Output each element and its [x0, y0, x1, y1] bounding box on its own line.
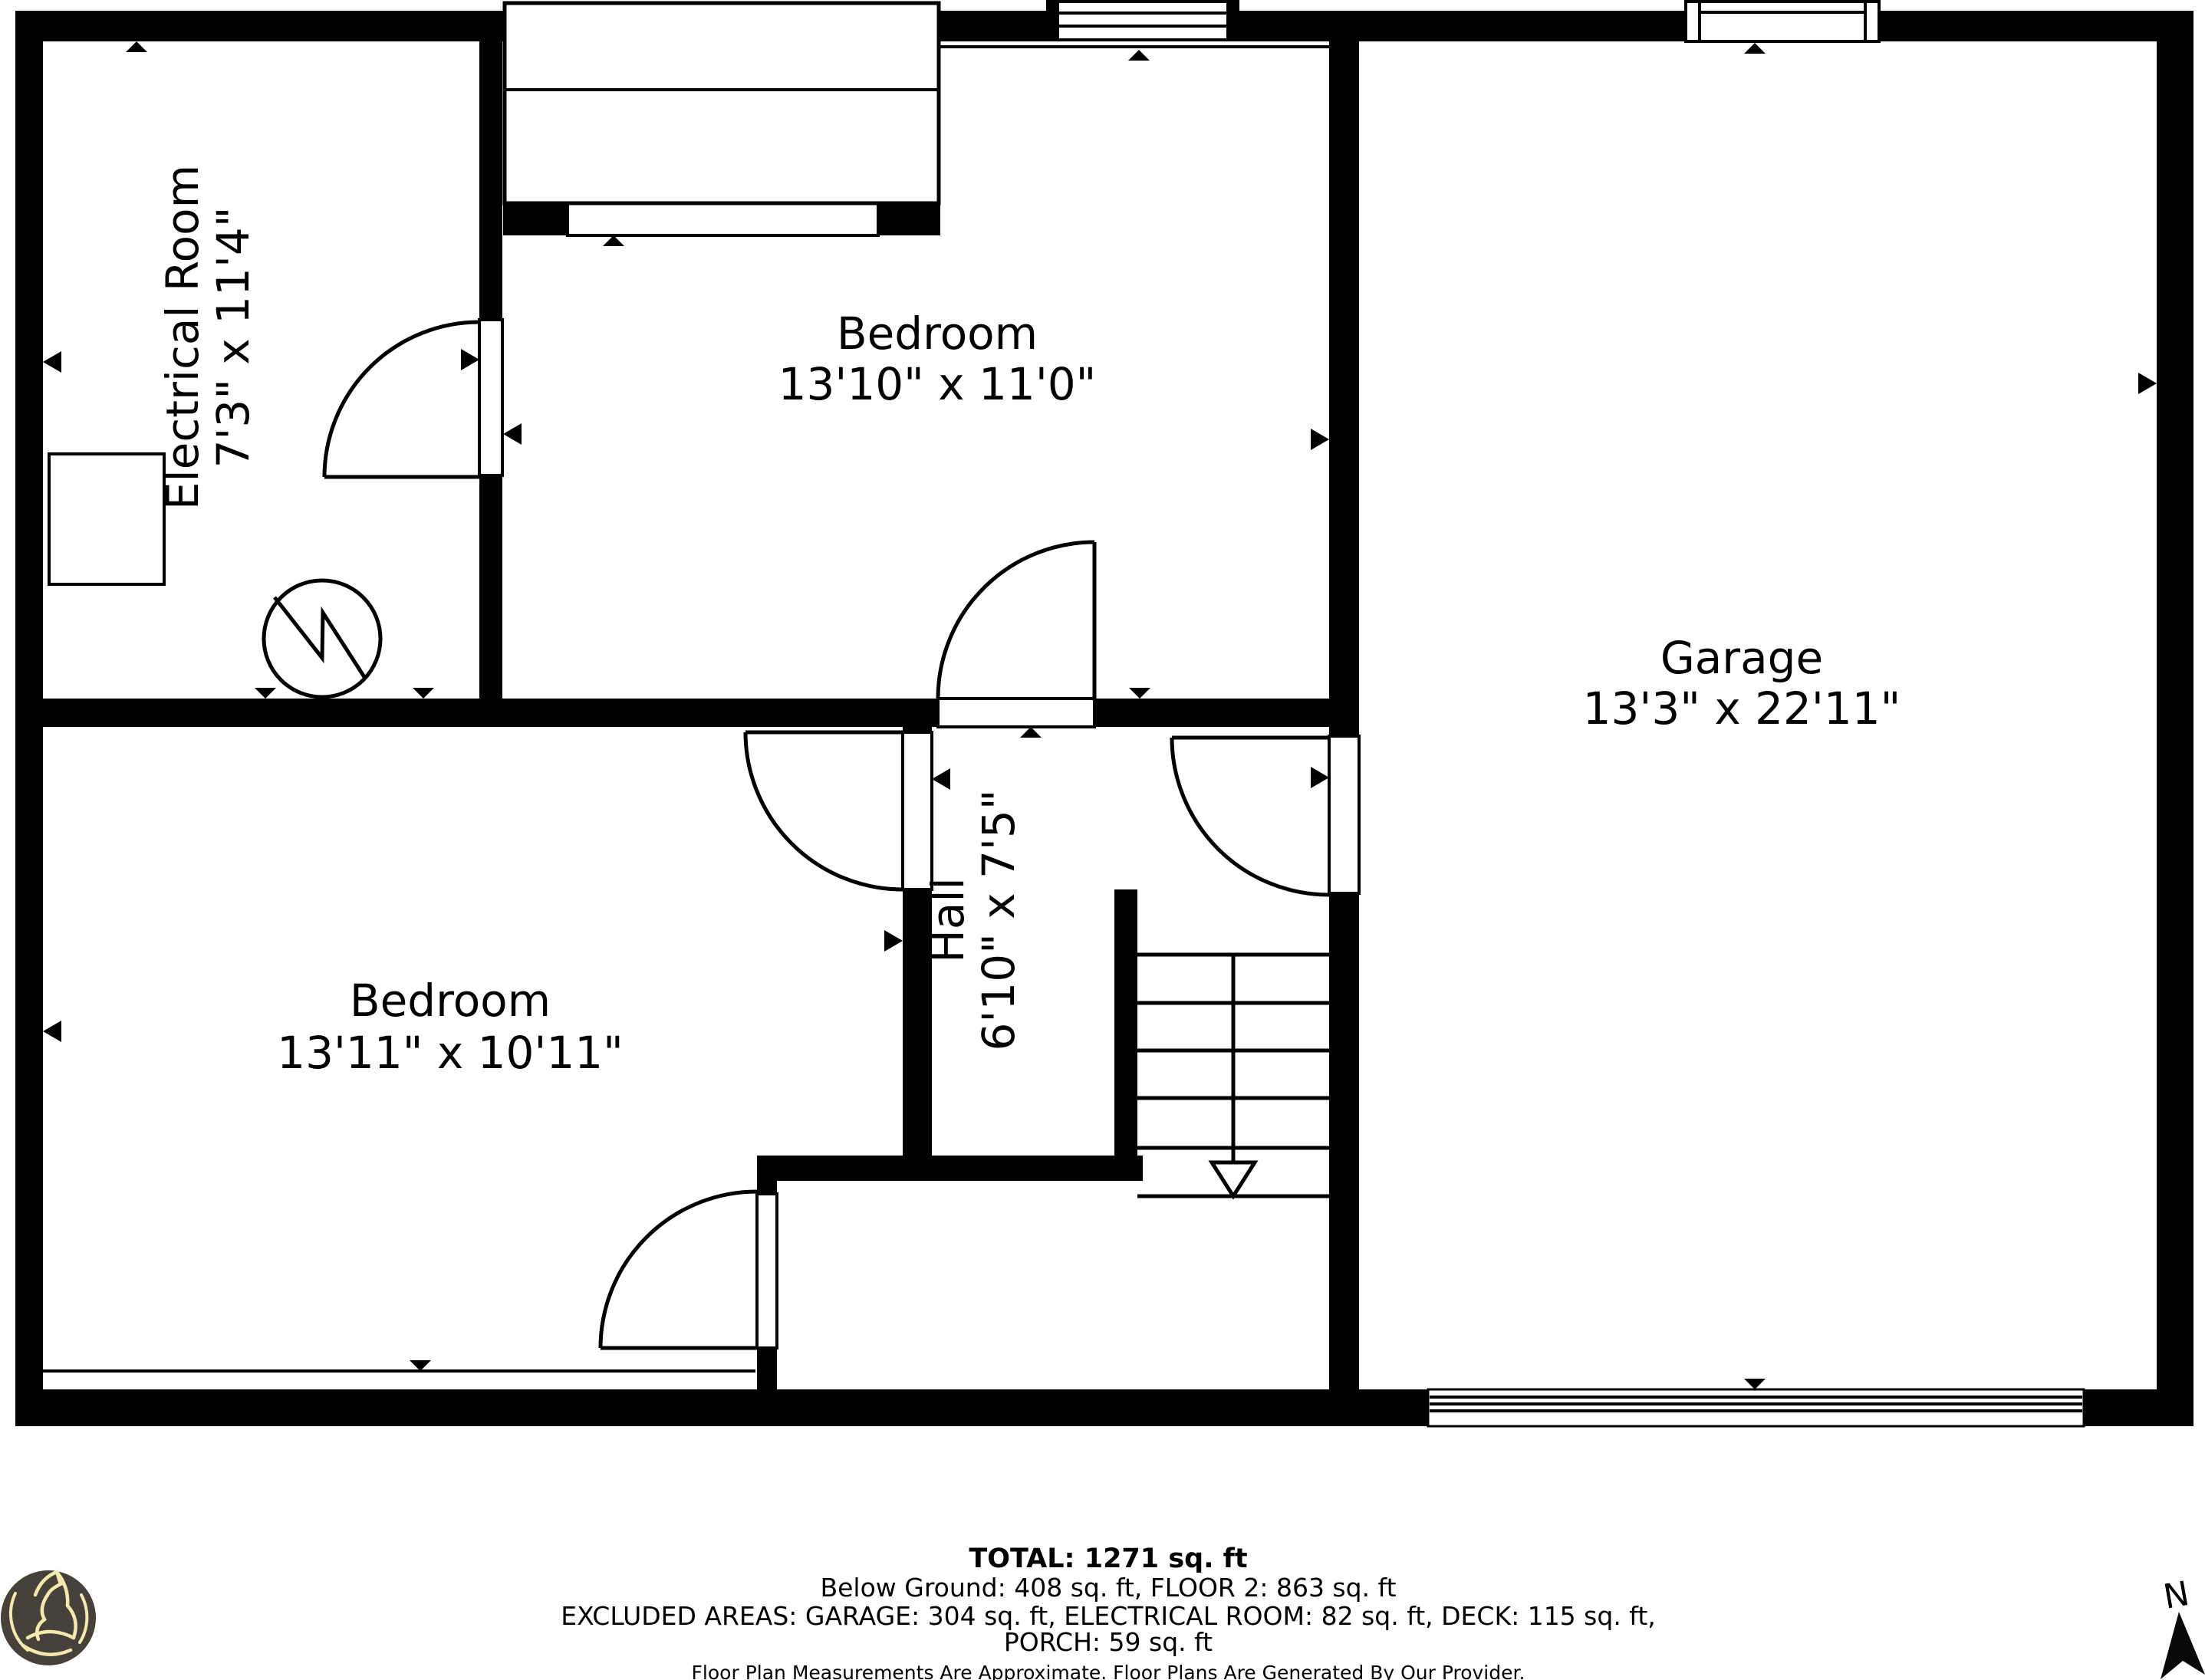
room-labels: Electrical Room 7'3" x 11'4" Bedroom 13'… [156, 165, 1901, 1079]
electrical-door-opening [479, 320, 502, 475]
electrical-panel-box [49, 454, 164, 584]
electrical-room-dims: 7'3" x 11'4" [207, 207, 259, 468]
electrical-door-arc [324, 322, 479, 477]
electrical-room-label: Electrical Room 7'3" x 11'4" [156, 165, 259, 510]
closet-door-opening [757, 1194, 777, 1348]
garage-porch [1686, 2, 1879, 41]
hall-garage-door-opening [1329, 736, 1359, 893]
wall-electrical-divider-upper [479, 41, 502, 320]
wall-top-left [15, 11, 503, 41]
electrical-door [324, 322, 479, 477]
bedroom-top-window [568, 203, 878, 235]
deck-outline [505, 3, 939, 203]
wall-garage-west-lower [1329, 893, 1359, 1426]
marker-left-icon [43, 1021, 61, 1042]
bedroom-top-label: Bedroom 13'10" x 11'0" [778, 307, 1097, 410]
marker-right-icon [1311, 767, 1329, 788]
closet-door [601, 1192, 757, 1348]
floor-plan-canvas: Electrical Room 7'3" x 11'4" Bedroom 13'… [0, 0, 2205, 1680]
hall-garage-door [1172, 738, 1329, 895]
footer-disclaimer: Floor Plan Measurements Are Approximate.… [692, 1662, 1525, 1680]
compass: N [2161, 1574, 2205, 1679]
marker-right-icon [461, 349, 479, 370]
footer-breakdown: Below Ground: 408 sq. ft, FLOOR 2: 863 s… [820, 1573, 1396, 1603]
stoop-rail-left [1048, 2, 1059, 40]
stairs [1137, 955, 1329, 1196]
porch-outline [1686, 2, 1879, 41]
wall-right [2157, 11, 2193, 1426]
wall-mid-horizontal-right [1094, 699, 1329, 727]
wall-bedroom-top-a [503, 203, 568, 235]
footer-excluded-line2: PORCH: 59 sq. ft [1004, 1627, 1213, 1657]
footer: TOTAL: 1271 sq. ft Below Ground: 408 sq.… [561, 1544, 1656, 1680]
deck-structure [505, 3, 939, 203]
bedroom-top-door [938, 542, 1094, 699]
marker-up-icon [1128, 50, 1150, 61]
hall-dims: 6'10" x 7'5" [973, 790, 1025, 1051]
marker-up-icon [1020, 727, 1042, 738]
closet-door-arc [601, 1192, 757, 1348]
compass-north-label: N [2161, 1574, 2192, 1617]
marker-up-icon [1744, 43, 1766, 54]
garage-dims: 13'3" x 22'11" [1583, 682, 1901, 735]
wall-top-garage-left [1238, 11, 1686, 41]
bedroom-top-dims: 13'10" x 11'0" [778, 358, 1097, 410]
marker-right-icon [884, 930, 903, 952]
bedroom-top-door-opening [938, 699, 1094, 727]
marker-left-icon [43, 351, 61, 373]
wall-closet-upper [757, 1156, 777, 1194]
floor-plan-page: Electrical Room 7'3" x 11'4" Bedroom 13'… [0, 0, 2205, 1680]
wall-closet-lower [757, 1348, 777, 1426]
wall-top-garage-right [1879, 11, 2193, 41]
door-swings [324, 322, 1329, 1348]
bedroom-left-door-opening [903, 732, 932, 889]
marker-right-icon [2138, 373, 2157, 394]
marker-down-icon [1129, 688, 1150, 699]
bedroom-left-dims: 13'11" x 10'11" [277, 1027, 624, 1079]
logo-badge-circle [1, 1570, 96, 1665]
garage-label: Garage 13'3" x 22'11" [1583, 632, 1901, 735]
bedroom-left-door-arc [745, 732, 903, 889]
marker-right-icon [1311, 429, 1329, 450]
garage-door [1428, 1389, 2084, 1426]
electrical-room-name: Electrical Room [156, 165, 209, 510]
compass-needle-icon [2161, 1612, 2205, 1679]
wall-mid-horizontal-left [43, 699, 938, 727]
stair-down-arrow-icon [1212, 1162, 1255, 1196]
provider-logo [1, 1570, 96, 1665]
footer-total: TOTAL: 1271 sq. ft [969, 1544, 1247, 1574]
stoop-rail-right [1226, 2, 1238, 40]
bedroom-left-label: Bedroom 13'11" x 10'11" [277, 975, 624, 1079]
marker-up-icon [603, 235, 624, 246]
marker-down-icon [410, 1360, 431, 1371]
wall-electrical-divider-lower [479, 475, 502, 699]
stoop-outline [1048, 2, 1238, 40]
wall-bottom-left [15, 1389, 1428, 1426]
marker-down-icon [413, 688, 434, 699]
bedroom-top-door-arc [938, 542, 1094, 699]
bedroom-left-door [745, 732, 903, 889]
marker-up-icon [126, 41, 147, 52]
marker-left-icon [932, 768, 950, 790]
wall-bedroom-top-b [878, 203, 940, 235]
hall-name: Hall [922, 877, 974, 962]
garage-door-band [1428, 1389, 2084, 1426]
marker-down-icon [1744, 1379, 1766, 1389]
marker-left-icon [503, 423, 522, 445]
wall-hall-bottom [757, 1156, 1143, 1181]
bedroom-left-name: Bedroom [350, 975, 551, 1027]
wall-top-mid [940, 11, 1048, 41]
marker-down-icon [255, 688, 276, 699]
wall-garage-west-upper [1329, 11, 1359, 736]
wall-stairs-left [1114, 889, 1137, 1181]
hall-label: Hall 6'10" x 7'5" [922, 790, 1025, 1051]
garage-name: Garage [1660, 632, 1823, 684]
bedroom-top-name: Bedroom [837, 307, 1038, 360]
hall-garage-door-arc [1172, 738, 1329, 895]
